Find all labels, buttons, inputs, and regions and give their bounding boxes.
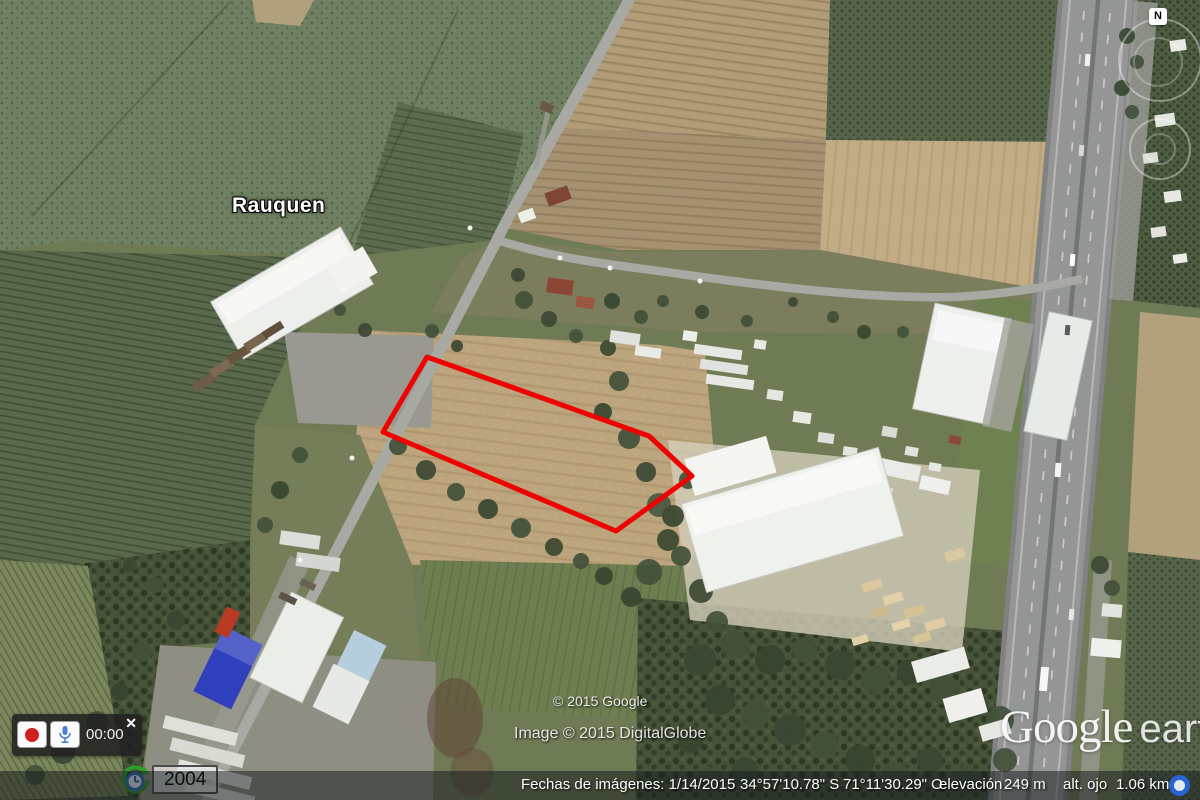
streaming-indicator-icon <box>1169 775 1190 796</box>
close-icon[interactable]: ✕ <box>125 715 137 731</box>
status-bar: Fechas de imágenes: 1/14/2015 34°57'10.7… <box>0 771 1200 800</box>
copyright-digitalglobe: Image © 2015 DigitalGlobe <box>514 725 706 743</box>
eye-altitude-label: alt. ojo <box>1063 776 1107 793</box>
eye-altitude-value: 1.06 km <box>1116 776 1169 793</box>
logo-earth-text: earth <box>1139 707 1200 751</box>
google-earth-window: Rauquen N 00:00 ✕ 2004 © 2015 Google Ima… <box>0 0 1200 800</box>
google-earth-logo: Googleearth <box>1000 700 1200 754</box>
copyright-google: © 2015 Google <box>553 693 647 709</box>
record-button[interactable] <box>17 721 47 748</box>
move-joystick-inner[interactable] <box>1144 133 1176 165</box>
record-icon <box>25 728 39 742</box>
compass-north-button[interactable]: N <box>1149 8 1167 25</box>
imagery-date: Fechas de imágenes: 1/14/2015 <box>521 776 735 793</box>
microphone-icon <box>58 725 72 744</box>
movie-recorder-panel: 00:00 ✕ <box>12 714 142 756</box>
elevation-label: elevación <box>939 776 1002 793</box>
longitude-readout: 71°11'30.29" O <box>843 776 943 793</box>
recording-timer: 00:00 <box>86 726 124 743</box>
latitude-readout: 34°57'10.78" S <box>740 776 839 793</box>
satellite-map[interactable] <box>0 0 1200 800</box>
logo-google-text: Google <box>1000 701 1132 753</box>
elevation-value: 249 m <box>1004 776 1046 793</box>
look-ring-inner[interactable] <box>1133 37 1183 87</box>
microphone-button[interactable] <box>50 721 80 748</box>
place-label-rauquen: Rauquen <box>232 194 325 218</box>
